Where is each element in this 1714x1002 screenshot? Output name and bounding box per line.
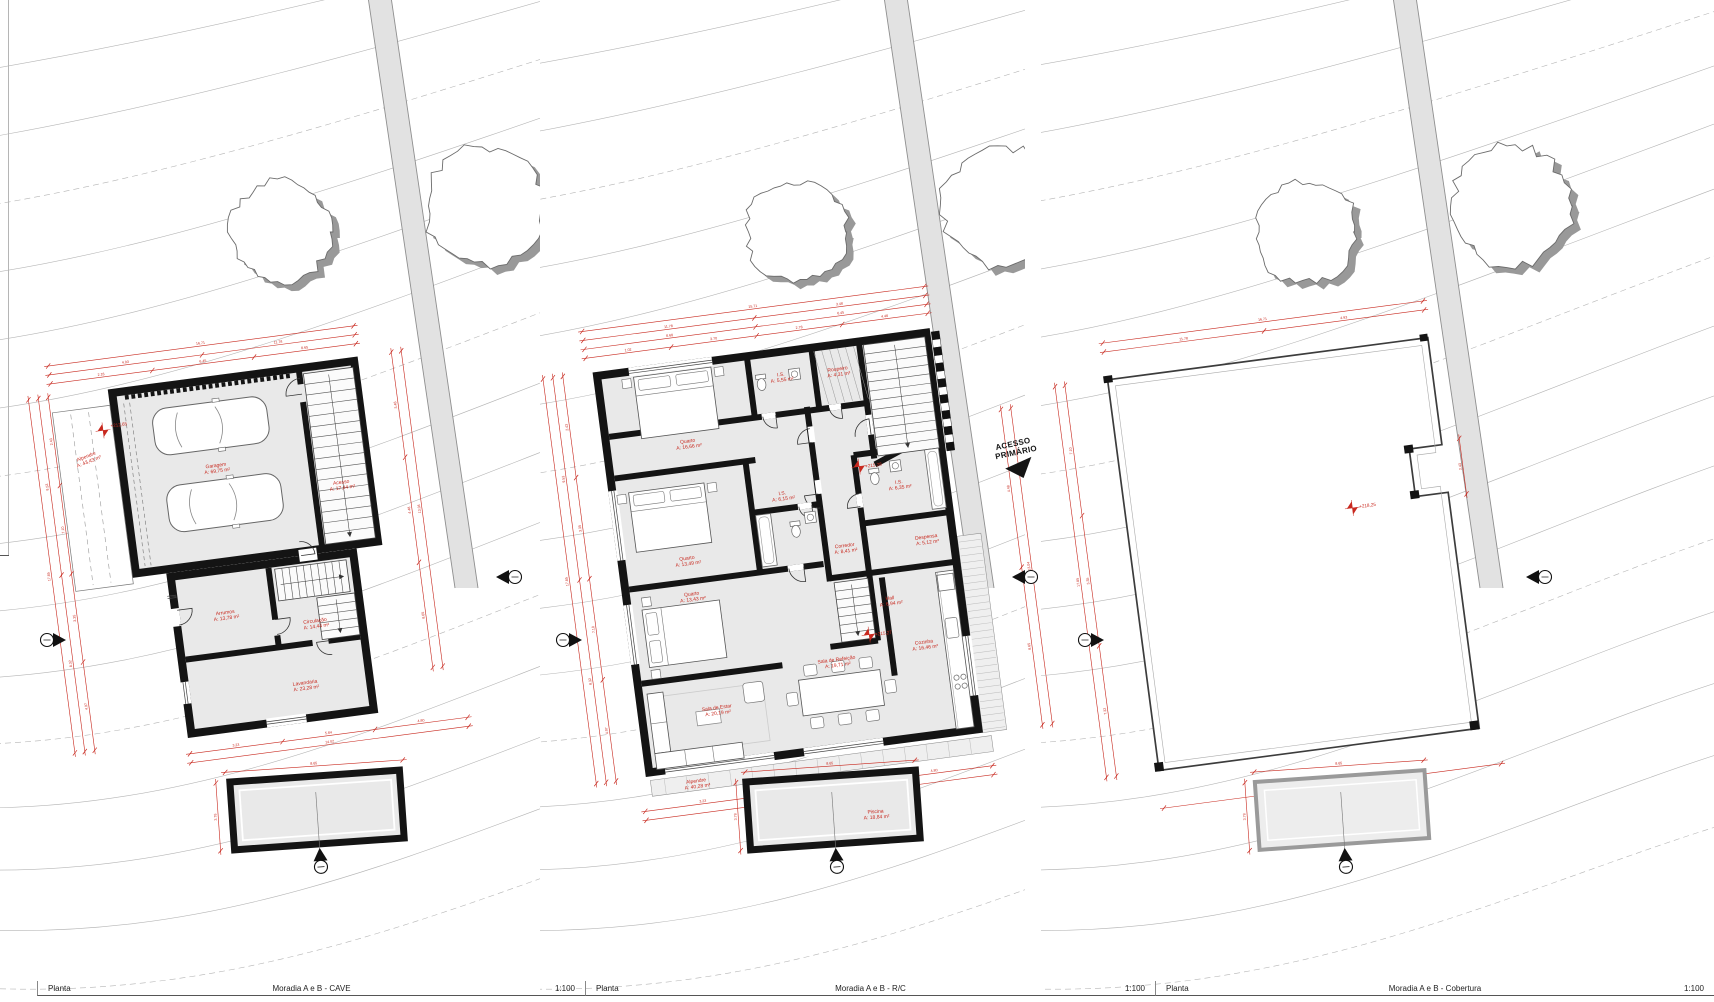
checker-band: [936, 371, 945, 380]
dim-label: 2.78: [795, 325, 802, 330]
dim-label: 3.35: [1086, 577, 1091, 584]
checker-band: [944, 426, 953, 435]
drawing-scale: 1:100: [443, 984, 575, 993]
title-block-cave: Planta Moradia A e B - CAVE 1:100: [37, 981, 585, 996]
contour-line: [501, 62, 1216, 274]
garage-door-segment: [234, 380, 238, 385]
wall-stub: [1419, 334, 1428, 342]
coffee-table: [696, 709, 722, 726]
dim-label: 8.65: [421, 611, 426, 618]
dim-label: 8.65: [1335, 761, 1342, 765]
section-marker: [1526, 570, 1552, 584]
garage-door-segment: [183, 387, 187, 392]
line: [1099, 300, 1427, 343]
dim-label: 13.04: [417, 504, 422, 513]
dim-label: 8.32: [588, 678, 593, 685]
rect: [788, 368, 800, 380]
dim-label: 3.23: [232, 743, 239, 748]
contour-line: [501, 0, 1216, 70]
wall-stub: [1469, 720, 1479, 730]
garage-door-segment: [131, 394, 135, 399]
drawing-type: Planta: [1166, 984, 1301, 993]
mirror: [232, 524, 239, 528]
dim-label: 17.85: [564, 577, 569, 586]
garage-door-segment: [260, 377, 264, 382]
dim-label: 2.43: [49, 438, 54, 445]
dim-label: 8.68: [666, 333, 673, 338]
checker-band: [932, 339, 941, 348]
dim-label: 1.02: [624, 348, 631, 353]
contour-line: [501, 0, 1216, 138]
nightstand: [651, 669, 661, 679]
dim-label: 7.10: [1068, 447, 1073, 454]
dim-label: 3.78: [1242, 813, 1246, 820]
dim-label: 16.71: [196, 341, 205, 346]
contour-line: [0, 0, 700, 138]
contour-line: [0, 62, 700, 274]
dim-label: 3.35: [578, 525, 583, 532]
interior-wall: [299, 368, 301, 384]
garage-door-segment: [286, 374, 290, 379]
section-marker: [829, 847, 845, 873]
checker-band: [942, 410, 951, 419]
dim-label: 7.32: [1103, 708, 1108, 715]
nightstand: [641, 597, 651, 607]
garage-door-segment: [266, 376, 270, 381]
dim-label: 3.35: [72, 614, 77, 621]
garage-door-segment: [221, 382, 225, 387]
dim-label: 2.43: [564, 424, 569, 431]
nightstand: [622, 379, 632, 389]
sink: [889, 460, 901, 472]
checker-band: [931, 331, 940, 340]
contour-line: [1005, 824, 1714, 989]
mirror: [212, 398, 219, 402]
sink: [788, 368, 800, 380]
wall-stub: [1154, 762, 1164, 772]
checker-band: [943, 418, 952, 427]
garage-door-segment: [138, 393, 142, 398]
rect: [804, 511, 816, 523]
dim-label: 2.18: [97, 372, 104, 377]
roof-outline: [1108, 338, 1480, 771]
section-arrow-icon: [569, 633, 582, 647]
chair: [859, 657, 873, 670]
garage-door-segment: [196, 385, 200, 390]
dim-label: 3.48: [393, 401, 398, 408]
garage-door-segment: [208, 384, 212, 389]
dim-label: 4.93: [1340, 315, 1347, 320]
tree-icon: [939, 146, 1064, 270]
garage-door-segment: [125, 395, 129, 400]
garage-door-segment: [279, 374, 283, 379]
dim-label: 9.53: [561, 475, 566, 482]
garage-door-segment: [202, 385, 206, 390]
drawing-sheet: 2.186.458.654.9311.7816.712.437.103.354.…: [0, 0, 1714, 1002]
dim-label: 9.53: [45, 483, 50, 490]
dimension-chain: 3.78: [211, 779, 223, 855]
section-arrow-icon: [496, 570, 509, 584]
checker-band: [937, 379, 946, 388]
mirror: [226, 475, 233, 479]
checker-band: [933, 347, 942, 356]
dimension-chain: 17.85: [1050, 382, 1109, 781]
contour-line: [0, 0, 700, 70]
stairs: [317, 593, 360, 640]
chair: [884, 679, 897, 693]
checker-band: [934, 355, 943, 364]
section-arrow-icon: [313, 847, 328, 861]
line: [578, 286, 928, 332]
chair: [838, 713, 852, 726]
section-arrow-icon: [1012, 570, 1025, 584]
dim-label: 8.65: [301, 345, 308, 350]
garage-door-segment: [163, 390, 167, 395]
checker-band: [938, 386, 947, 395]
section-arrow-icon: [1526, 570, 1539, 584]
contour-line: [496, 824, 1216, 989]
chair: [831, 660, 845, 673]
wall-stub: [1410, 490, 1420, 499]
checker-band: [941, 402, 950, 411]
sink: [804, 511, 816, 523]
dim-label: 5.84: [325, 731, 332, 736]
dim-label: 7.10: [61, 526, 66, 533]
contour-line: [1010, 0, 1714, 138]
line: [1064, 381, 1116, 780]
tree-icon: [227, 177, 333, 285]
dim-label: 8.32: [68, 660, 73, 667]
checker-band: [945, 434, 954, 443]
section-marker: [313, 847, 329, 873]
section-arrow-icon: [829, 847, 844, 861]
dim-label: 4.80: [417, 718, 424, 723]
garage-door-segment: [170, 389, 174, 394]
access-arrow-icon: [1004, 457, 1035, 481]
garage-door-segment: [144, 392, 148, 397]
dim-label: 8.65: [1027, 643, 1032, 650]
dimension-chain: 15.71: [578, 281, 929, 334]
dimension-chain: 13.04: [1006, 404, 1055, 728]
line: [1010, 404, 1053, 727]
dimension-chain: 16.71: [44, 321, 358, 369]
drawing-type: Planta: [596, 984, 733, 993]
drawing-title: Moradia A e B - Cobertura: [1301, 984, 1570, 993]
nightstand: [714, 366, 724, 376]
drawing-scale: 1:100: [1570, 984, 1705, 993]
line: [216, 779, 221, 855]
checker-band: [946, 442, 955, 451]
chair: [866, 709, 880, 722]
contour-line: [0, 824, 700, 989]
dim-label: 3.23: [699, 799, 706, 804]
dim-label: 3.78: [213, 813, 217, 820]
dimension-chain: 16.71: [1098, 296, 1427, 346]
contour-line: [1010, 0, 1714, 70]
contour-line: [501, 120, 1216, 342]
garage-door-segment: [157, 391, 161, 396]
dim-label: 16.71: [1258, 317, 1267, 322]
dim-label: 11.78: [664, 324, 673, 329]
panel-cave: 2.186.458.654.9311.7816.712.437.103.354.…: [0, 0, 700, 989]
title-block-cobertura: Planta Moradia A e B - Cobertura 1:100: [1155, 981, 1714, 996]
contour-line: [501, 8, 1216, 206]
line: [44, 325, 357, 366]
panel-cobertura: 11.784.9316.717.103.357.3217.852.4314.02…: [1005, 0, 1714, 989]
chair: [786, 692, 799, 706]
garage-door-segment: [273, 375, 277, 380]
contour-line: [0, 8, 700, 206]
dim-label: 4.97: [84, 703, 89, 710]
section-marker: [1012, 570, 1038, 584]
section-arrow-icon: [1338, 847, 1353, 861]
section-marker: [496, 570, 522, 584]
garage-door-segment: [215, 383, 219, 388]
checker-band: [935, 363, 944, 372]
chair: [810, 716, 824, 729]
panel-rc: 1.023.702.784.488.686.4511.783.4815.712.…: [496, 0, 1216, 989]
garage-door-segment: [176, 388, 180, 393]
dim-label: 13.04: [1026, 561, 1031, 570]
dim-label: 17.85: [47, 572, 52, 581]
drawing-type: Planta: [48, 984, 180, 993]
wall-stub: [1103, 375, 1113, 383]
nightstand: [617, 494, 627, 504]
garage-door-segment: [254, 378, 258, 383]
section-marker: [41, 633, 67, 647]
floor-plans-canvas: 2.186.458.654.9311.7816.712.437.103.354.…: [0, 0, 1714, 1002]
wall-stub: [1404, 445, 1414, 454]
title-block-rc: Planta Moradia A e B - R/C 1:100: [585, 981, 1155, 996]
dim-label: 4.48: [1006, 485, 1011, 492]
chair: [803, 664, 817, 677]
fridge: [937, 573, 955, 591]
tree-icon: [1256, 179, 1357, 283]
armchair: [742, 681, 764, 703]
dim-label: 3.78: [733, 813, 737, 820]
garage-door-segment: [247, 379, 251, 384]
dim-label: 4.48: [881, 314, 888, 319]
contour-line: [0, 120, 700, 342]
drawing-scale: 1:100: [1008, 984, 1145, 993]
dim-label: 4.48: [407, 506, 412, 513]
dim-label: 4.97: [604, 727, 609, 734]
garage-door-segment: [189, 386, 193, 391]
garage-door-segment: [228, 381, 232, 386]
line: [1055, 383, 1107, 782]
dim-label: 6.45: [837, 311, 844, 316]
drawing-title: Moradia A e B - CAVE: [180, 984, 444, 993]
dim-label: 4.80: [930, 768, 937, 773]
dim-label: 7.10: [591, 626, 596, 633]
section-arrow-icon: [1091, 633, 1104, 647]
road: [367, 0, 478, 588]
garage-door-segment: [150, 391, 154, 396]
section-marker: [1338, 847, 1354, 873]
nightstand: [707, 482, 717, 492]
checker-band: [940, 394, 949, 403]
title-bar: Planta Moradia A e B - CAVE 1:100 Planta…: [0, 981, 1714, 996]
drawing-title: Moradia A e B - R/C: [733, 984, 1008, 993]
dimension-chain: 4.488.65: [996, 405, 1045, 729]
garage-door-segment: [241, 380, 245, 385]
dim-label: 3.48: [836, 302, 843, 307]
dim-label: 3.70: [710, 336, 717, 341]
dim-label: 17.85: [1076, 578, 1081, 587]
mirror: [218, 447, 225, 451]
dim-label: 11.78: [1179, 336, 1188, 341]
line: [542, 375, 596, 787]
dim-label: 8.65: [310, 761, 317, 765]
contour-line: [1010, 8, 1714, 206]
dim-label: 15.71: [748, 304, 757, 309]
dimension-chain: 9.538.32: [548, 373, 609, 786]
dimension-chain: 7.103.357.32: [1060, 381, 1119, 780]
dim-label: 4.93: [122, 360, 129, 365]
stairs: [834, 578, 876, 642]
rect: [889, 460, 901, 472]
